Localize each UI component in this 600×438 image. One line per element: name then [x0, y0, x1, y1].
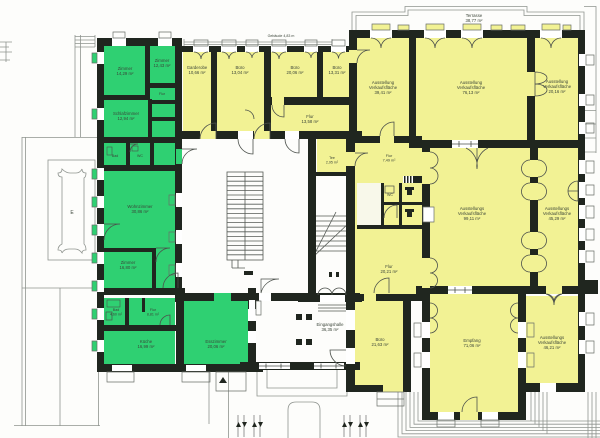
svg-text:Gebäude 4,83 m: Gebäude 4,83 m: [268, 34, 295, 38]
svg-text:Empfang71,06 m²: Empfang71,06 m²: [463, 338, 481, 348]
svg-text:Garderobe10,66 m²: Garderobe10,66 m²: [187, 65, 208, 75]
svg-text:Flur: Flur: [159, 92, 166, 96]
svg-text:WC: WC: [387, 193, 393, 197]
svg-text:Zimmer12,43 m²: Zimmer12,43 m²: [154, 58, 172, 68]
svg-text:Terrasse38,77 m²: Terrasse38,77 m²: [466, 13, 484, 23]
svg-text:Zimmer16,80 m²: Zimmer16,80 m²: [120, 260, 138, 270]
svg-text:Bad: Bad: [112, 154, 118, 158]
svg-text:Esszimmer20,06 m²: Esszimmer20,06 m²: [205, 339, 227, 349]
svg-text:WC: WC: [137, 154, 143, 158]
svg-text:Zimmer14,29 m²: Zimmer14,29 m²: [117, 66, 135, 76]
